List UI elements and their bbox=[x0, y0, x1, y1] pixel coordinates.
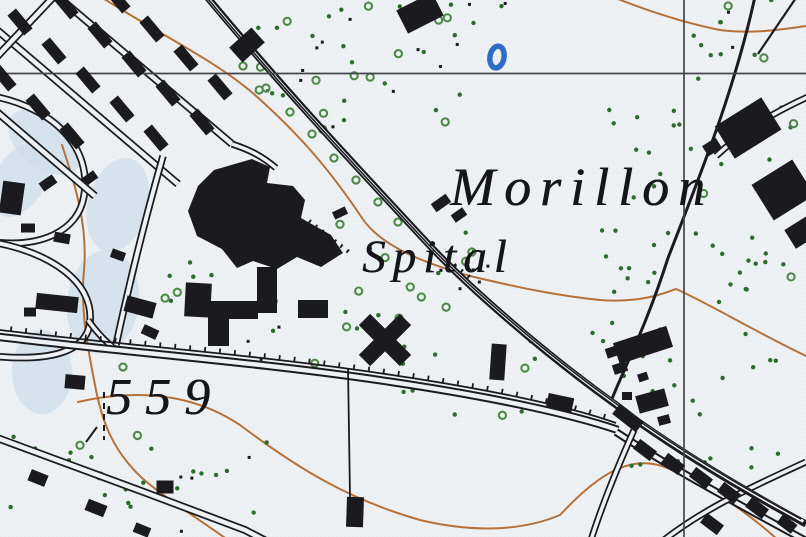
boulder-dot bbox=[247, 340, 250, 343]
shrub-dot bbox=[666, 231, 670, 235]
tramway-tick bbox=[369, 367, 370, 372]
building bbox=[157, 481, 174, 494]
elevation-label-559: 559 bbox=[106, 372, 223, 424]
tramway-tick bbox=[546, 398, 547, 403]
shrub-dot bbox=[629, 464, 633, 468]
building bbox=[21, 224, 35, 233]
boulder-dot bbox=[439, 65, 442, 68]
shrub-dot bbox=[627, 266, 631, 270]
shrub-dot bbox=[696, 76, 700, 80]
shrub-dot bbox=[744, 287, 748, 291]
shrub-dot bbox=[422, 50, 426, 54]
tramway-tick bbox=[516, 392, 517, 397]
boulder-dot bbox=[315, 46, 318, 49]
shrub-dot bbox=[711, 243, 715, 247]
boulder-dot bbox=[179, 476, 182, 479]
shrub-dot bbox=[776, 451, 780, 455]
tramway-tick bbox=[85, 335, 86, 340]
tramway-tick bbox=[130, 339, 131, 344]
shrub-dot bbox=[433, 352, 437, 356]
building bbox=[346, 497, 364, 528]
boulder-dot bbox=[727, 11, 730, 14]
shrub-dot bbox=[168, 274, 172, 278]
shrub-dot bbox=[750, 235, 754, 239]
shrub-dot bbox=[355, 326, 359, 330]
boulder-dot bbox=[190, 477, 193, 480]
shrub-dot bbox=[68, 451, 72, 455]
shrub-dot bbox=[275, 26, 279, 30]
shrub-dot bbox=[149, 446, 153, 450]
shrub-dot bbox=[694, 231, 698, 235]
shrub-dot bbox=[652, 243, 656, 247]
shrub-dot bbox=[774, 359, 778, 363]
place-label-morillon: Morillon bbox=[450, 160, 714, 214]
tramway-tick bbox=[41, 330, 42, 335]
building bbox=[298, 300, 328, 318]
shrub-dot bbox=[281, 93, 285, 97]
building bbox=[184, 282, 212, 317]
shrub-dot bbox=[677, 122, 681, 126]
tramway-tick bbox=[309, 359, 310, 364]
boulder-dot bbox=[331, 125, 334, 128]
boulder-dot bbox=[349, 18, 352, 21]
shrub-dot bbox=[672, 123, 676, 127]
tramway-tick bbox=[339, 362, 340, 367]
tramway-tick bbox=[220, 349, 221, 354]
shrub-dot bbox=[672, 383, 676, 387]
shrub-dot bbox=[672, 109, 676, 113]
shrub-dot bbox=[625, 276, 629, 280]
shrub-dot bbox=[781, 262, 785, 266]
shrub-dot bbox=[310, 34, 314, 38]
building bbox=[489, 344, 506, 381]
boulder-dot bbox=[456, 43, 459, 46]
tramway-tick bbox=[235, 350, 236, 355]
place-label-spital: Spital bbox=[362, 234, 514, 281]
shrub-dot bbox=[126, 501, 130, 505]
boulder-dot bbox=[321, 41, 324, 44]
shrub-dot bbox=[453, 412, 457, 416]
tramway-tick bbox=[160, 342, 161, 347]
boulder-dot bbox=[180, 530, 183, 533]
shrub-dot bbox=[635, 115, 639, 119]
shrub-dot bbox=[668, 358, 672, 362]
tramway-tick bbox=[428, 376, 429, 381]
boulder-dot bbox=[468, 3, 471, 6]
shrub-dot bbox=[607, 108, 611, 112]
tramway-tick bbox=[575, 406, 576, 411]
building bbox=[622, 392, 632, 400]
shrub-dot bbox=[746, 258, 750, 262]
tramway-tick bbox=[70, 333, 71, 338]
boulder-dot bbox=[731, 46, 734, 49]
shrub-dot bbox=[749, 446, 753, 450]
shrub-dot bbox=[604, 254, 608, 258]
tramway-tick bbox=[264, 353, 265, 358]
building bbox=[257, 267, 277, 313]
shrub-dot bbox=[708, 456, 712, 460]
tramway-tick bbox=[413, 373, 414, 378]
shrub-dot bbox=[271, 329, 275, 333]
shrub-dot bbox=[342, 118, 346, 122]
shrub-dot bbox=[638, 462, 642, 466]
tramway-tick bbox=[502, 389, 503, 394]
tramway-tick bbox=[56, 331, 57, 336]
boulder-dot bbox=[392, 90, 395, 93]
shrub-dot bbox=[601, 339, 605, 343]
shrub-dot bbox=[341, 44, 345, 48]
shrub-dot bbox=[590, 331, 594, 335]
shrub-dot bbox=[471, 21, 475, 25]
tramway-tick bbox=[11, 326, 12, 331]
shrub-dot bbox=[499, 4, 503, 8]
map-canvas[interactable]: Morillon Spital 559 bbox=[0, 0, 806, 537]
shrub-dot bbox=[199, 471, 203, 475]
shrub-dot bbox=[612, 290, 616, 294]
shrub-dot bbox=[453, 33, 457, 37]
boulder-dot bbox=[301, 69, 304, 72]
tramway-tick bbox=[443, 378, 444, 383]
tramway-tick bbox=[250, 352, 251, 357]
shrub-dot bbox=[717, 300, 721, 304]
shrub-dot bbox=[11, 435, 15, 439]
shrub-dot bbox=[754, 262, 758, 266]
shrub-dot bbox=[719, 20, 723, 24]
shrub-dot bbox=[103, 493, 107, 497]
shrub-dot bbox=[768, 358, 772, 362]
shrub-dot bbox=[764, 251, 768, 255]
building bbox=[64, 374, 85, 390]
shrub-dot bbox=[743, 332, 747, 336]
boulder-dot bbox=[248, 456, 251, 459]
shrub-dot bbox=[327, 14, 331, 18]
shrub-dot bbox=[8, 505, 12, 509]
shrub-dot bbox=[225, 469, 229, 473]
tramway-tick bbox=[531, 395, 532, 400]
shrub-dot bbox=[350, 60, 354, 64]
shrub-dot bbox=[720, 252, 724, 256]
tramway-tick bbox=[279, 355, 280, 360]
shrub-dot bbox=[214, 473, 218, 477]
shrub-dot bbox=[646, 280, 650, 284]
shrub-dot bbox=[342, 99, 346, 103]
shrub-dot bbox=[339, 8, 343, 12]
shrub-dot bbox=[188, 260, 192, 264]
shrub-dot bbox=[691, 399, 695, 403]
building bbox=[24, 308, 36, 317]
shrub-dot bbox=[752, 53, 756, 57]
tramway-tick bbox=[115, 338, 116, 343]
shrub-dot bbox=[175, 486, 179, 490]
shrub-dot bbox=[533, 357, 537, 361]
shrub-dot bbox=[251, 510, 255, 514]
tramway-tick bbox=[354, 364, 355, 369]
boulder-dot bbox=[277, 326, 280, 329]
shrub-dot bbox=[191, 274, 195, 278]
shrub-dot bbox=[128, 504, 132, 508]
shrub-dot bbox=[612, 121, 616, 125]
tramway-tick bbox=[472, 383, 473, 388]
tramway-tick bbox=[190, 345, 191, 350]
shrub-dot bbox=[401, 390, 405, 394]
shrub-dot bbox=[141, 481, 145, 485]
boulder-dot bbox=[459, 287, 462, 290]
boulder-dot bbox=[504, 2, 507, 5]
building bbox=[0, 181, 25, 216]
shrub-dot bbox=[434, 108, 438, 112]
shrub-dot bbox=[751, 365, 755, 369]
shrub-dot bbox=[383, 81, 387, 85]
tramway-tick bbox=[175, 344, 176, 349]
shrub-dot bbox=[610, 321, 614, 325]
tramway-tick bbox=[26, 328, 27, 333]
shrub-dot bbox=[720, 376, 724, 380]
shrub-dot bbox=[634, 147, 638, 151]
shrub-dot bbox=[652, 271, 656, 275]
boulder-dot bbox=[299, 79, 302, 82]
shrub-dot bbox=[270, 91, 274, 95]
shrub-dot bbox=[709, 53, 713, 57]
shrub-dot bbox=[209, 273, 213, 277]
shrub-dot bbox=[343, 310, 347, 314]
shrub-dot bbox=[749, 465, 753, 469]
shrub-dot bbox=[698, 412, 702, 416]
tramway-tick bbox=[487, 386, 488, 391]
tramway-tick bbox=[205, 347, 206, 352]
shrub-dot bbox=[647, 150, 651, 154]
tramway-tick bbox=[324, 361, 325, 366]
shrub-dot bbox=[719, 52, 723, 56]
tramway-tick bbox=[383, 369, 384, 374]
shrub-dot bbox=[449, 2, 453, 6]
tramway-tick bbox=[145, 341, 146, 346]
shrub-dot bbox=[191, 469, 195, 473]
tramway-tick bbox=[100, 336, 101, 341]
shrub-dot bbox=[519, 409, 523, 413]
shrub-dot bbox=[89, 455, 93, 459]
shrub-dot bbox=[728, 282, 732, 286]
shrub-dot bbox=[458, 93, 462, 97]
shrub-dot bbox=[264, 440, 268, 444]
shrub-dot bbox=[619, 266, 623, 270]
shrub-dot bbox=[689, 147, 693, 151]
shrub-dot bbox=[692, 34, 696, 38]
shrub-dot bbox=[613, 228, 617, 232]
tramway-tick bbox=[294, 357, 295, 362]
shrub-dot bbox=[699, 43, 703, 47]
shrub-dot bbox=[256, 26, 260, 30]
shrub-dot bbox=[763, 260, 767, 264]
shrub-dot bbox=[738, 270, 742, 274]
shrub-dot bbox=[600, 228, 604, 232]
tramway-tick bbox=[457, 381, 458, 386]
tramway-tick bbox=[398, 371, 399, 376]
boulder-dot bbox=[417, 48, 420, 51]
shrub-dot bbox=[376, 313, 380, 317]
shrub-dot bbox=[767, 157, 771, 161]
shrub-dot bbox=[719, 162, 723, 166]
